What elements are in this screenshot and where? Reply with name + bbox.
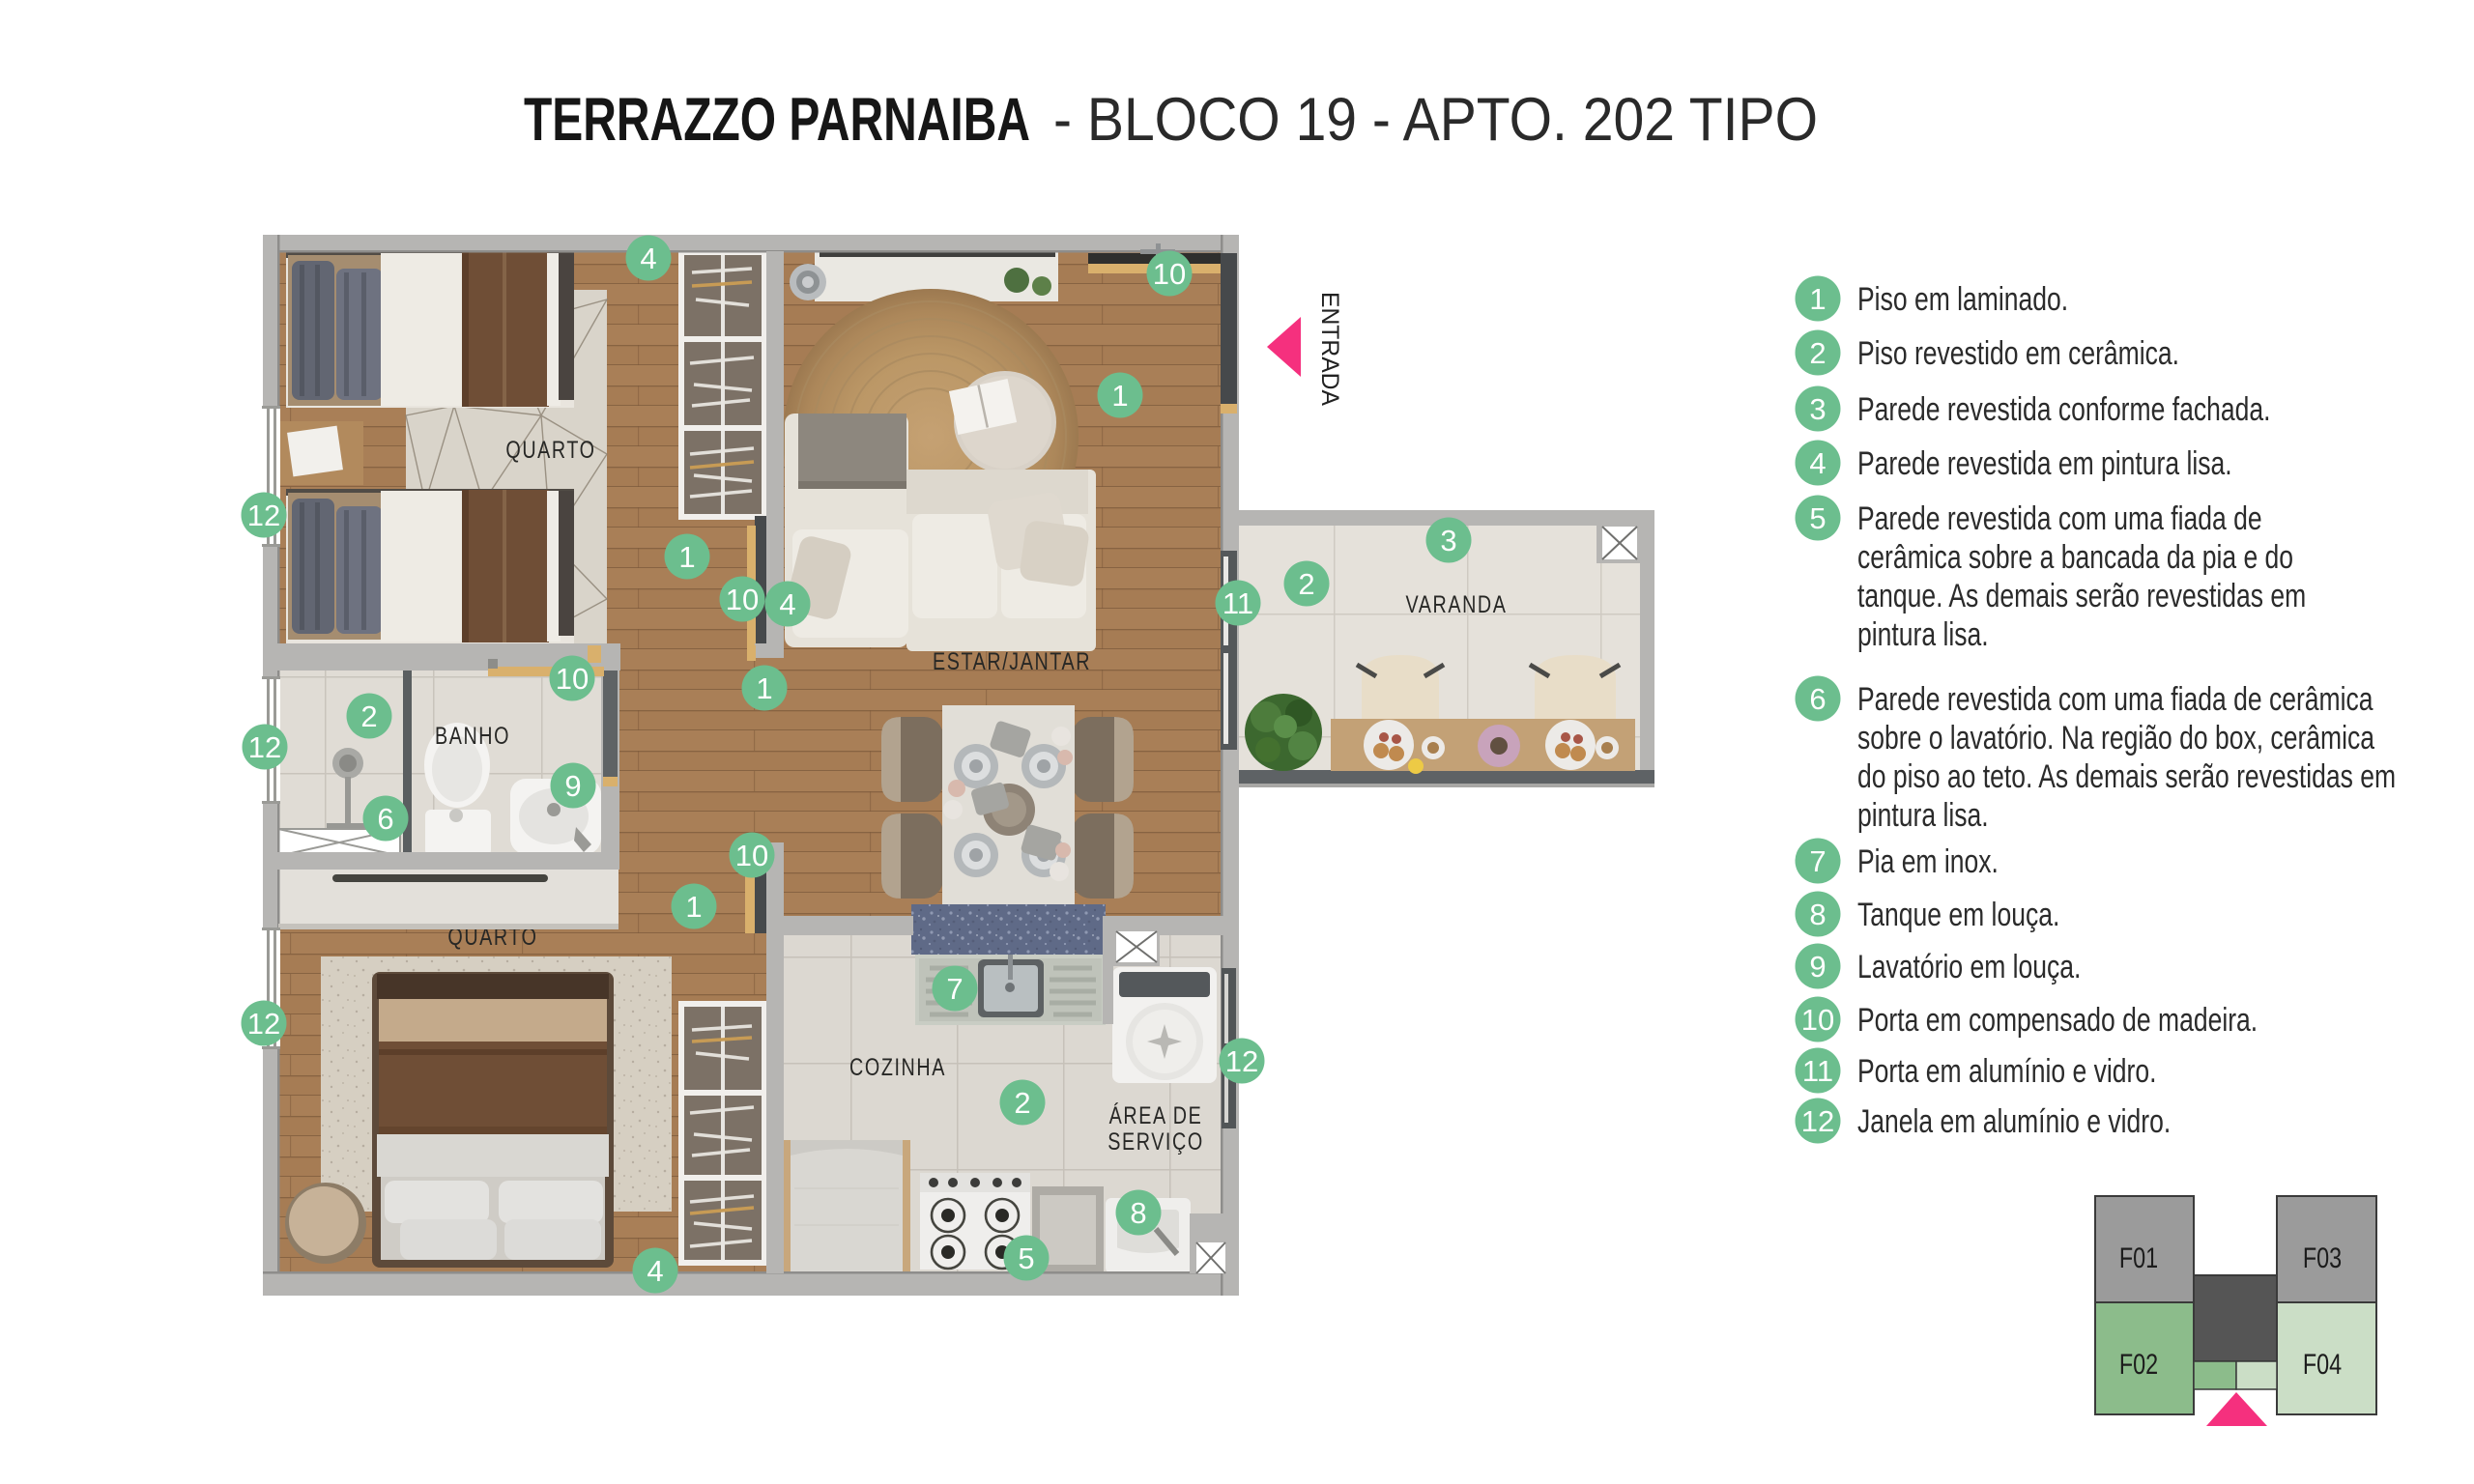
svg-text:11: 11 <box>1223 586 1253 620</box>
svg-text:7: 7 <box>1809 844 1826 878</box>
svg-text:2: 2 <box>1298 567 1314 601</box>
svg-text:sobre o lavatório. Na região d: sobre o lavatório. Na região do box, cer… <box>1857 720 2374 756</box>
svg-text:6: 6 <box>377 802 393 836</box>
svg-text:1: 1 <box>1111 379 1128 413</box>
svg-text:3: 3 <box>1440 524 1456 557</box>
svg-text:F02: F02 <box>2119 1348 2158 1380</box>
svg-text:cerâmica sobre a bancada da pi: cerâmica sobre a bancada da pia e do <box>1857 539 2293 576</box>
svg-text:4: 4 <box>647 1254 663 1288</box>
svg-text:BANHO: BANHO <box>435 723 510 750</box>
svg-text:4: 4 <box>779 587 795 621</box>
svg-text:10: 10 <box>726 583 759 616</box>
svg-text:12: 12 <box>247 1007 280 1041</box>
svg-text:ESTAR/JANTAR: ESTAR/JANTAR <box>933 648 1091 675</box>
svg-text:TERRAZZO PARNAIBA: TERRAZZO PARNAIBA <box>524 86 1030 154</box>
svg-text:Parede revestida com uma fiada: Parede revestida com uma fiada de cerâmi… <box>1857 681 2373 718</box>
svg-text:8: 8 <box>1809 898 1826 931</box>
svg-text:12: 12 <box>248 730 281 764</box>
svg-text:COZINHA: COZINHA <box>849 1054 946 1081</box>
svg-text:Porta em compensado de madeira: Porta em compensado de madeira. <box>1857 1002 2258 1039</box>
svg-text:8: 8 <box>1130 1196 1146 1230</box>
svg-text:2: 2 <box>360 699 377 733</box>
svg-text:2: 2 <box>1014 1086 1030 1120</box>
svg-text:pintura lisa.: pintura lisa. <box>1857 797 1989 834</box>
svg-text:Janela em alumínio e vidro.: Janela em alumínio e vidro. <box>1857 1103 2171 1140</box>
svg-text:SERVIÇO: SERVIÇO <box>1108 1128 1204 1156</box>
svg-text:10: 10 <box>1801 1003 1834 1037</box>
svg-text:F03: F03 <box>2303 1241 2342 1273</box>
svg-text:10: 10 <box>1153 257 1186 291</box>
svg-text:1: 1 <box>1809 282 1826 316</box>
svg-text:Porta em alumínio e vidro.: Porta em alumínio e vidro. <box>1857 1053 2156 1090</box>
svg-text:ENTRADA: ENTRADA <box>1316 292 1343 406</box>
svg-text:10: 10 <box>735 839 768 872</box>
svg-text:7: 7 <box>946 972 963 1006</box>
svg-text:Tanque em louça.: Tanque em louça. <box>1857 897 2059 933</box>
svg-text:1: 1 <box>685 890 702 924</box>
svg-text:Pia em inox.: Pia em inox. <box>1857 843 1999 880</box>
svg-text:4: 4 <box>1809 446 1826 480</box>
svg-text:5: 5 <box>1809 501 1826 535</box>
svg-text:tanque. As demais serão revest: tanque. As demais serão revestidas em <box>1857 578 2306 614</box>
svg-text:Piso em laminado.: Piso em laminado. <box>1857 281 2068 318</box>
svg-text:ÁREA DE: ÁREA DE <box>1109 1102 1203 1129</box>
svg-text:10: 10 <box>556 662 589 696</box>
svg-text:F04: F04 <box>2303 1348 2342 1380</box>
svg-text:11: 11 <box>1802 1054 1833 1088</box>
svg-text:12: 12 <box>1801 1104 1834 1138</box>
svg-text:Lavatório em louça.: Lavatório em louça. <box>1857 949 2081 985</box>
svg-text:Parede revestida conforme fach: Parede revestida conforme fachada. <box>1857 391 2270 428</box>
svg-text:Piso revestido em cerâmica.: Piso revestido em cerâmica. <box>1857 335 2179 372</box>
svg-text:VARANDA: VARANDA <box>1405 591 1507 618</box>
svg-text:6: 6 <box>1809 682 1826 716</box>
svg-text:1: 1 <box>756 671 772 705</box>
svg-text:F01: F01 <box>2119 1241 2158 1273</box>
svg-text:9: 9 <box>564 769 581 803</box>
svg-text:Parede revestida em pintura li: Parede revestida em pintura lisa. <box>1857 445 2232 482</box>
svg-text:12: 12 <box>247 499 280 532</box>
svg-text:- BLOCO 19 - APTO. 202 TIPO: - BLOCO 19 - APTO. 202 TIPO <box>1053 86 1818 154</box>
svg-text:9: 9 <box>1809 950 1826 984</box>
svg-text:QUARTO: QUARTO <box>505 437 595 464</box>
svg-text:1: 1 <box>678 540 695 574</box>
svg-text:3: 3 <box>1809 392 1826 426</box>
svg-text:pintura lisa.: pintura lisa. <box>1857 616 1989 653</box>
svg-text:2: 2 <box>1809 336 1826 370</box>
svg-text:4: 4 <box>640 242 656 275</box>
svg-text:do piso ao teto. As demais ser: do piso ao teto. As demais serão revesti… <box>1857 758 2396 795</box>
svg-text:12: 12 <box>1225 1044 1258 1078</box>
svg-text:5: 5 <box>1018 1241 1034 1275</box>
svg-text:Parede revestida com uma fiada: Parede revestida com uma fiada de <box>1857 500 2262 537</box>
